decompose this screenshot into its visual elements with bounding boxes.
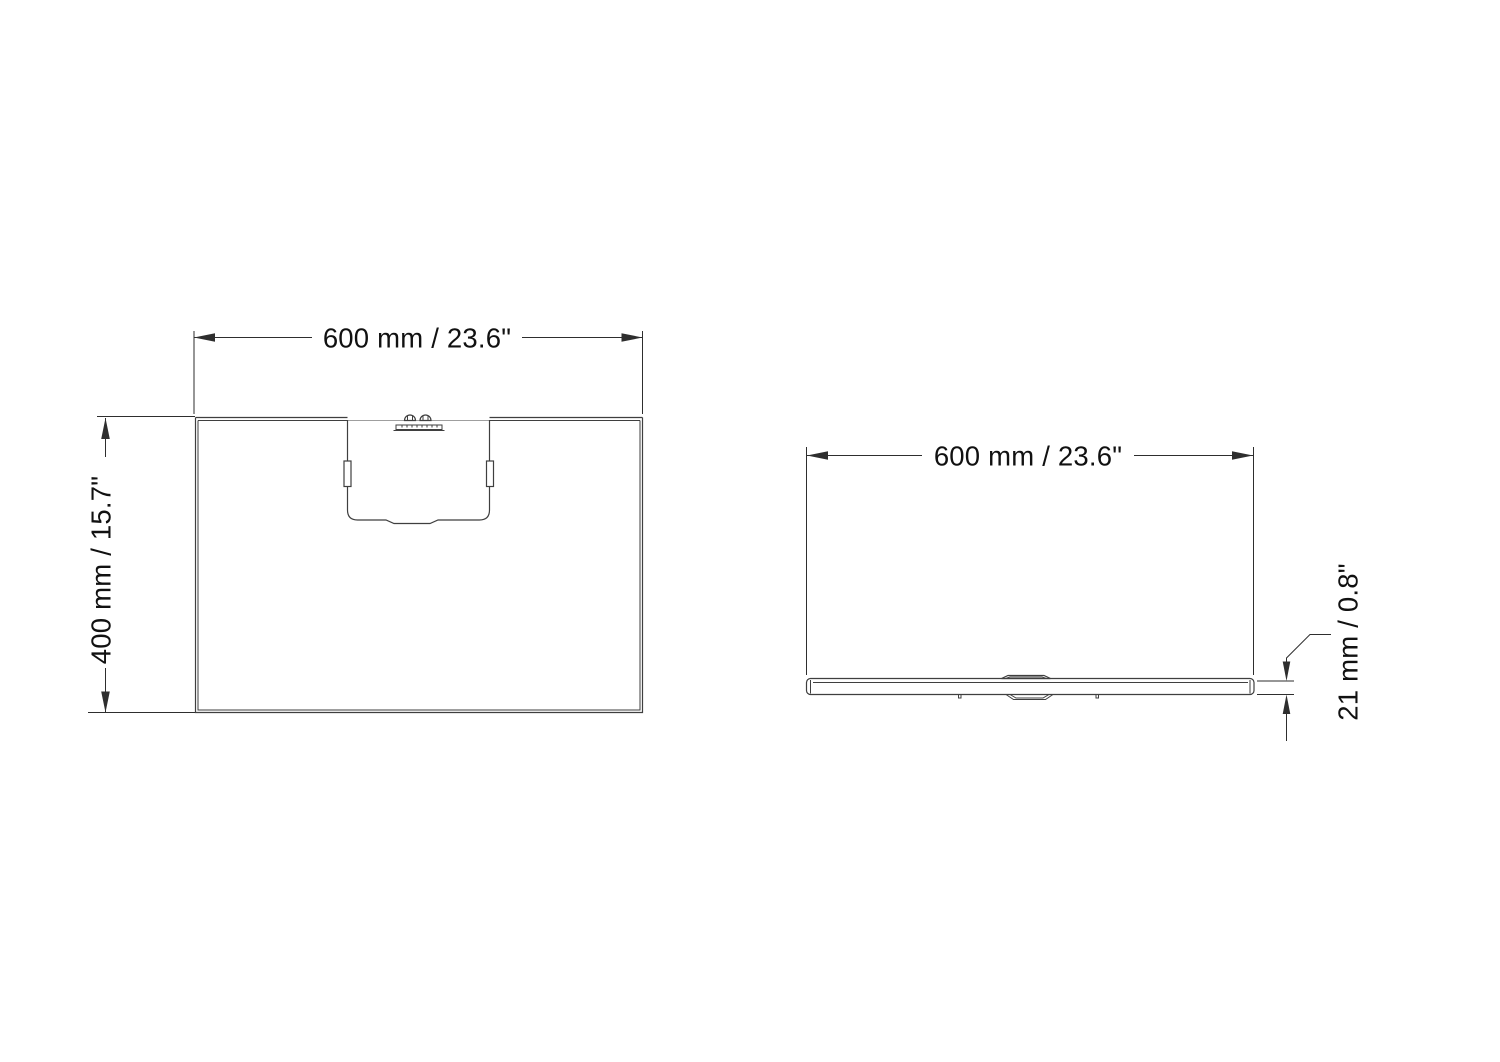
mounting-bracket <box>344 415 494 524</box>
front-view-thickness-label: 21 mm / 0.8" <box>1333 563 1364 720</box>
front-view: 600 mm / 23.6" 21 mm / 0.8" <box>807 441 1364 742</box>
top-view-width-label: 600 mm / 23.6" <box>323 323 511 354</box>
leader-line <box>1287 635 1332 662</box>
arrowhead-bottom <box>101 692 110 713</box>
arrowhead-top <box>1283 662 1291 682</box>
bracket-right-tab <box>487 461 494 487</box>
bracket-left-tab <box>344 461 351 487</box>
arrowhead-right <box>1232 451 1253 460</box>
front-view-thickness-dimension: 21 mm / 0.8" <box>1257 563 1364 741</box>
technical-drawing-sheet: 600 mm / 23.6" 400 mm / 15.7" <box>0 0 1500 1062</box>
arrowhead-left <box>194 333 215 342</box>
front-view-outline <box>807 679 1255 695</box>
screw-right <box>420 415 431 421</box>
bracket-body <box>348 421 490 524</box>
bottom-pocket <box>959 695 1099 700</box>
front-view-width-label: 600 mm / 23.6" <box>934 441 1122 472</box>
arrowhead-bottom <box>1283 695 1291 715</box>
arrowhead-top <box>101 418 110 439</box>
arrowhead-right <box>622 333 643 342</box>
top-tab <box>1002 676 1051 679</box>
top-view-width-dimension: 600 mm / 23.6" <box>194 323 643 415</box>
extension-lines <box>807 447 1254 675</box>
front-view-width-dimension: 600 mm / 23.6" <box>807 441 1254 676</box>
top-view-height-label: 400 mm / 15.7" <box>86 476 117 664</box>
arrowhead-left <box>807 451 828 460</box>
top-view-height-dimension: 400 mm / 15.7" <box>86 417 196 713</box>
extension-lines <box>1257 681 1294 695</box>
screw-left <box>405 415 416 421</box>
top-view: 600 mm / 23.6" 400 mm / 15.7" <box>86 323 643 713</box>
